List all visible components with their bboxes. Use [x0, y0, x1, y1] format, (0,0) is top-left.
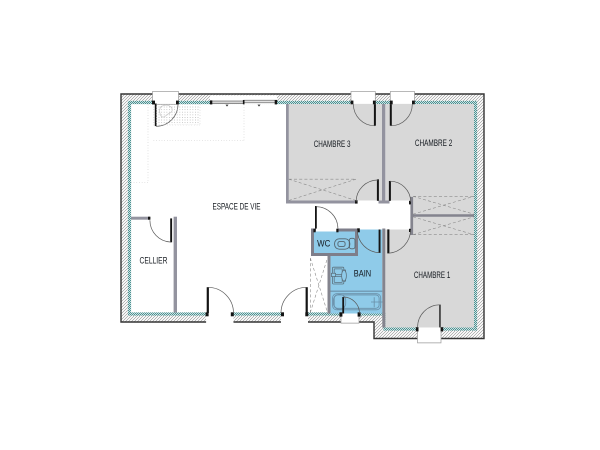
svg-text:CHAMBRE 2: CHAMBRE 2 — [415, 138, 452, 148]
svg-text:ESPACE DE VIE: ESPACE DE VIE — [213, 201, 261, 211]
svg-text:CHAMBRE 1: CHAMBRE 1 — [414, 270, 450, 280]
svg-text:CHAMBRE 3: CHAMBRE 3 — [314, 139, 351, 149]
svg-text:BAIN: BAIN — [354, 269, 371, 279]
svg-text:WC: WC — [317, 237, 330, 248]
svg-text:CELLIER: CELLIER — [140, 256, 168, 266]
